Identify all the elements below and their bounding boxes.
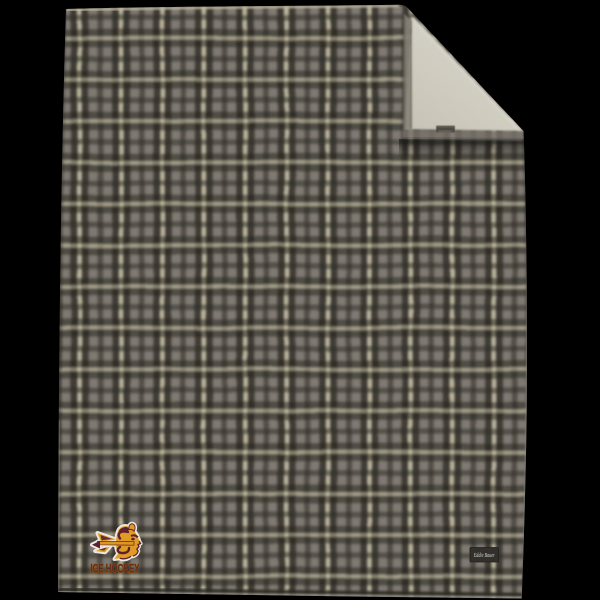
svg-text:Eddie Bauer: Eddie Bauer (473, 553, 495, 559)
svg-text:ICE HOCKEY: ICE HOCKEY (91, 564, 140, 576)
